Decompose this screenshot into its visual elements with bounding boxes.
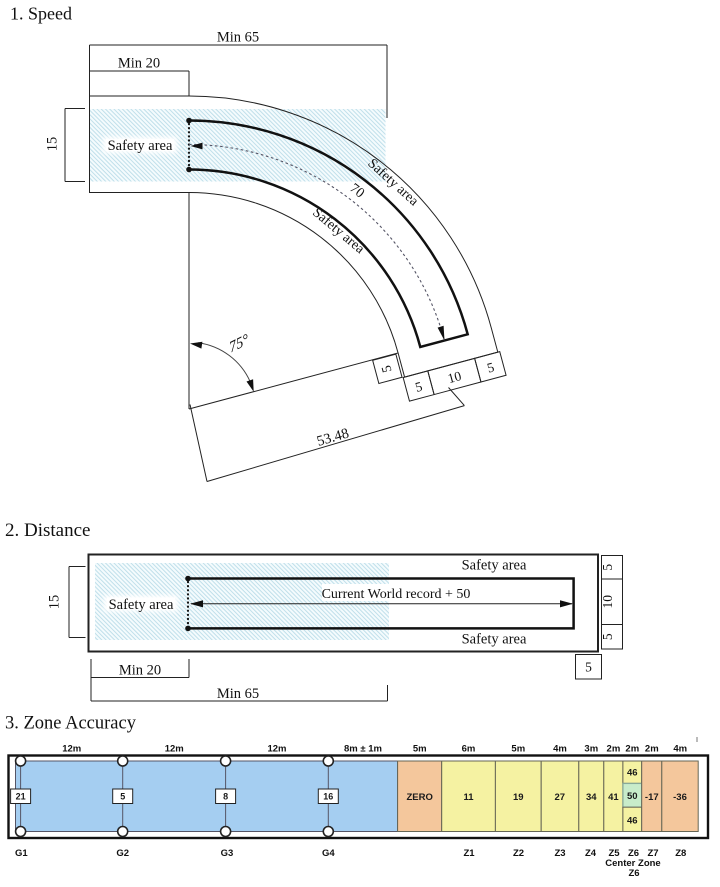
svg-text:4m: 4m bbox=[553, 744, 567, 755]
svg-text:8m ± 1m: 8m ± 1m bbox=[344, 744, 382, 755]
svg-text:3. Zone Accuracy: 3. Zone Accuracy bbox=[5, 714, 137, 734]
svg-text:5: 5 bbox=[120, 792, 125, 802]
svg-text:2m: 2m bbox=[625, 744, 639, 755]
svg-text:5: 5 bbox=[414, 379, 425, 395]
svg-text:8: 8 bbox=[223, 792, 228, 802]
svg-text:6m: 6m bbox=[462, 744, 476, 755]
svg-text:1. Speed: 1. Speed bbox=[10, 4, 72, 24]
svg-text:Safety area: Safety area bbox=[108, 138, 173, 154]
svg-text:11: 11 bbox=[463, 792, 474, 803]
svg-text:5m: 5m bbox=[511, 744, 525, 755]
svg-text:Safety area: Safety area bbox=[109, 597, 174, 613]
svg-text:Safety area: Safety area bbox=[462, 632, 527, 648]
svg-text:5: 5 bbox=[378, 364, 394, 375]
svg-text:53.48: 53.48 bbox=[315, 425, 351, 449]
svg-text:G3: G3 bbox=[221, 848, 234, 859]
svg-text:12m: 12m bbox=[267, 744, 286, 755]
svg-text:5m: 5m bbox=[413, 744, 427, 755]
svg-text:G1: G1 bbox=[15, 848, 28, 859]
svg-text:3m: 3m bbox=[584, 744, 598, 755]
svg-text:5: 5 bbox=[485, 359, 496, 375]
svg-text:5: 5 bbox=[600, 564, 615, 571]
svg-text:75°: 75° bbox=[228, 330, 251, 356]
svg-text:2. Distance: 2. Distance bbox=[5, 520, 90, 541]
svg-text:10: 10 bbox=[446, 368, 463, 386]
svg-text:2m: 2m bbox=[607, 744, 621, 755]
svg-text:Min 20: Min 20 bbox=[118, 56, 160, 72]
svg-text:19: 19 bbox=[513, 792, 524, 803]
svg-text:Safety area: Safety area bbox=[462, 558, 527, 574]
svg-text:Z3: Z3 bbox=[554, 848, 565, 859]
svg-text:Min 65: Min 65 bbox=[217, 686, 259, 702]
svg-text:46: 46 bbox=[627, 816, 638, 827]
svg-text:Z8: Z8 bbox=[675, 848, 686, 859]
svg-text:G2: G2 bbox=[116, 848, 129, 859]
svg-text:41: 41 bbox=[608, 792, 619, 803]
svg-text:12m: 12m bbox=[62, 744, 81, 755]
svg-text:46: 46 bbox=[627, 768, 638, 779]
svg-text:5: 5 bbox=[585, 660, 592, 675]
svg-text:50: 50 bbox=[627, 791, 638, 802]
svg-text:Z1: Z1 bbox=[463, 848, 475, 859]
svg-text:Min 20: Min 20 bbox=[119, 663, 161, 679]
svg-text:-17: -17 bbox=[645, 792, 659, 803]
svg-text:ZERO: ZERO bbox=[407, 792, 433, 803]
svg-text:16: 16 bbox=[323, 792, 333, 802]
svg-text:G4: G4 bbox=[322, 848, 335, 859]
svg-text:Current World record + 50: Current World record + 50 bbox=[322, 587, 471, 602]
svg-text:27: 27 bbox=[555, 792, 566, 803]
svg-text:-36: -36 bbox=[673, 792, 687, 803]
svg-text:Min 65: Min 65 bbox=[217, 30, 259, 46]
svg-text:4m: 4m bbox=[673, 744, 687, 755]
svg-text:12m: 12m bbox=[165, 744, 184, 755]
svg-text:15: 15 bbox=[45, 137, 61, 152]
svg-text:Z4: Z4 bbox=[585, 848, 597, 859]
svg-text:5: 5 bbox=[600, 633, 615, 640]
svg-text:Z2: Z2 bbox=[513, 848, 524, 859]
svg-text:21: 21 bbox=[16, 792, 26, 802]
svg-text:34: 34 bbox=[586, 792, 597, 803]
svg-text:15: 15 bbox=[47, 595, 63, 610]
svg-text:Safety area: Safety area bbox=[309, 205, 367, 257]
svg-text:Z6: Z6 bbox=[628, 868, 639, 879]
svg-text:10: 10 bbox=[600, 595, 615, 609]
svg-text:2m: 2m bbox=[645, 744, 659, 755]
svg-text:Safety area: Safety area bbox=[364, 156, 421, 210]
